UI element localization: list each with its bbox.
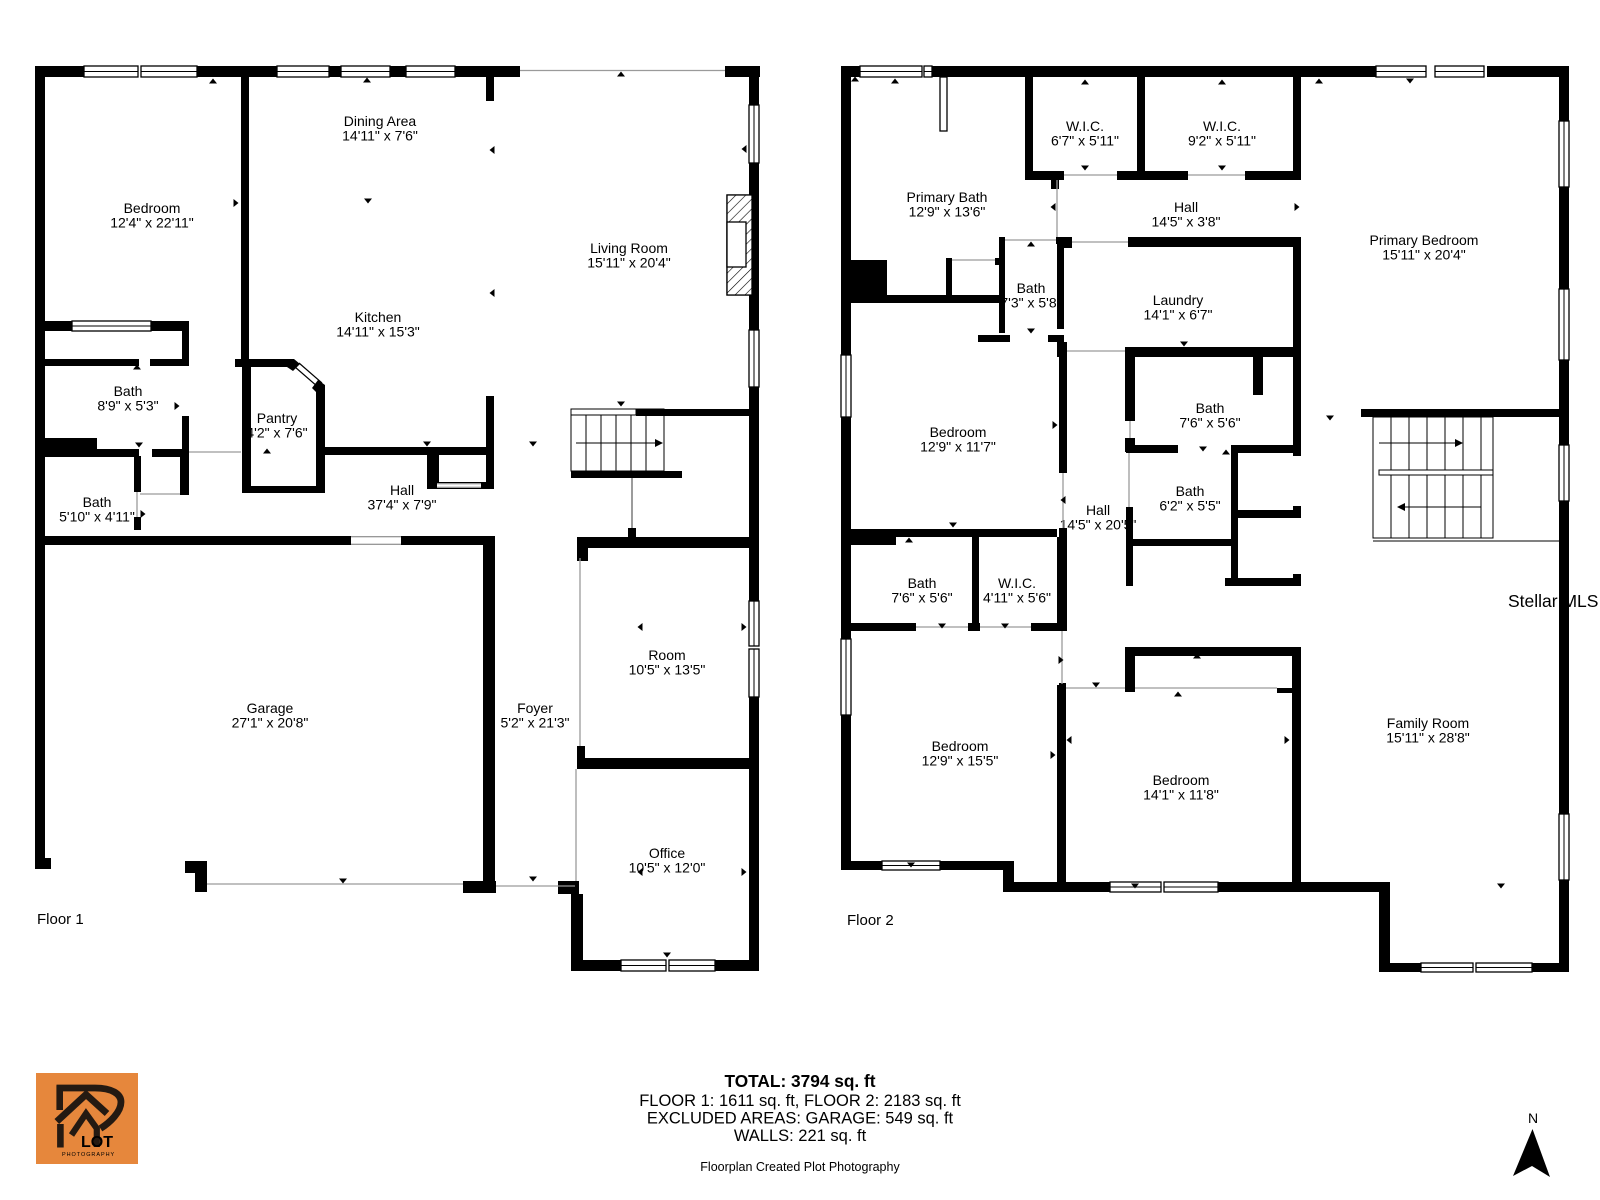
svg-text:14'11" x 7'6": 14'11" x 7'6" xyxy=(342,128,418,144)
svg-text:14'5" x 3'8": 14'5" x 3'8" xyxy=(1152,214,1221,230)
svg-text:14'5" x 20'5": 14'5" x 20'5" xyxy=(1060,517,1137,533)
svg-text:4'2" x 7'6": 4'2" x 7'6" xyxy=(246,425,307,441)
svg-text:12'9" x 11'7": 12'9" x 11'7" xyxy=(920,439,996,455)
svg-text:15'11" x 28'8": 15'11" x 28'8" xyxy=(1386,730,1470,746)
svg-text:12'9" x 13'6": 12'9" x 13'6" xyxy=(909,204,986,220)
svg-text:EXCLUDED AREAS: GARAGE: 549 sq: EXCLUDED AREAS: GARAGE: 549 sq. ft xyxy=(647,1110,954,1128)
svg-text:9'2" x 5'11": 9'2" x 5'11" xyxy=(1188,133,1256,149)
svg-text:12'4" x 22'11": 12'4" x 22'11" xyxy=(110,215,194,231)
svg-text:LOT: LOT xyxy=(81,1134,113,1151)
svg-text:4'11" x 5'6": 4'11" x 5'6" xyxy=(983,590,1051,606)
svg-text:7'6" x 5'6": 7'6" x 5'6" xyxy=(891,590,952,606)
svg-text:10'5" x 13'5": 10'5" x 13'5" xyxy=(629,662,706,678)
svg-text:6'2" x 5'5": 6'2" x 5'5" xyxy=(1159,498,1220,514)
svg-text:8'9" x 5'3": 8'9" x 5'3" xyxy=(97,398,158,414)
svg-text:27'1" x 20'8": 27'1" x 20'8" xyxy=(232,715,309,731)
svg-text:Floor 1: Floor 1 xyxy=(37,911,84,928)
svg-text:Floorplan Created Plot Photogr: Floorplan Created Plot Photography xyxy=(700,1160,900,1174)
svg-text:5'10" x 4'11": 5'10" x 4'11" xyxy=(59,509,135,525)
svg-text:PHOTOGRAPHY: PHOTOGRAPHY xyxy=(62,1152,115,1158)
svg-text:14'11" x 15'3": 14'11" x 15'3" xyxy=(336,324,420,340)
svg-text:37'4" x 7'9": 37'4" x 7'9" xyxy=(368,497,437,513)
svg-text:WALLS: 221 sq. ft: WALLS: 221 sq. ft xyxy=(734,1127,867,1145)
svg-text:12'9" x 15'5": 12'9" x 15'5" xyxy=(922,753,999,769)
svg-text:15'11" x 20'4": 15'11" x 20'4" xyxy=(1382,247,1466,263)
svg-text:5'2" x 21'3": 5'2" x 21'3" xyxy=(501,715,570,731)
svg-text:Floor 2: Floor 2 xyxy=(847,912,894,929)
svg-text:N: N xyxy=(1528,1110,1538,1126)
svg-text:7'6" x 5'6": 7'6" x 5'6" xyxy=(1179,415,1240,431)
svg-text:15'11" x 20'4": 15'11" x 20'4" xyxy=(587,255,671,271)
svg-text:7'3" x 5'8": 7'3" x 5'8" xyxy=(1000,295,1061,311)
svg-text:10'5" x 12'0": 10'5" x 12'0" xyxy=(629,860,706,876)
svg-text:FLOOR 1: 1611 sq. ft, FLOOR 2:: FLOOR 1: 1611 sq. ft, FLOOR 2: 2183 sq. … xyxy=(639,1092,961,1110)
svg-text:6'7" x 5'11": 6'7" x 5'11" xyxy=(1051,133,1119,149)
svg-text:TOTAL: 3794 sq. ft: TOTAL: 3794 sq. ft xyxy=(724,1071,875,1091)
svg-text:14'1" x 6'7": 14'1" x 6'7" xyxy=(1144,307,1213,323)
svg-text:Stellar MLS: Stellar MLS xyxy=(1508,591,1598,611)
svg-text:14'1" x 11'8": 14'1" x 11'8" xyxy=(1143,787,1219,803)
